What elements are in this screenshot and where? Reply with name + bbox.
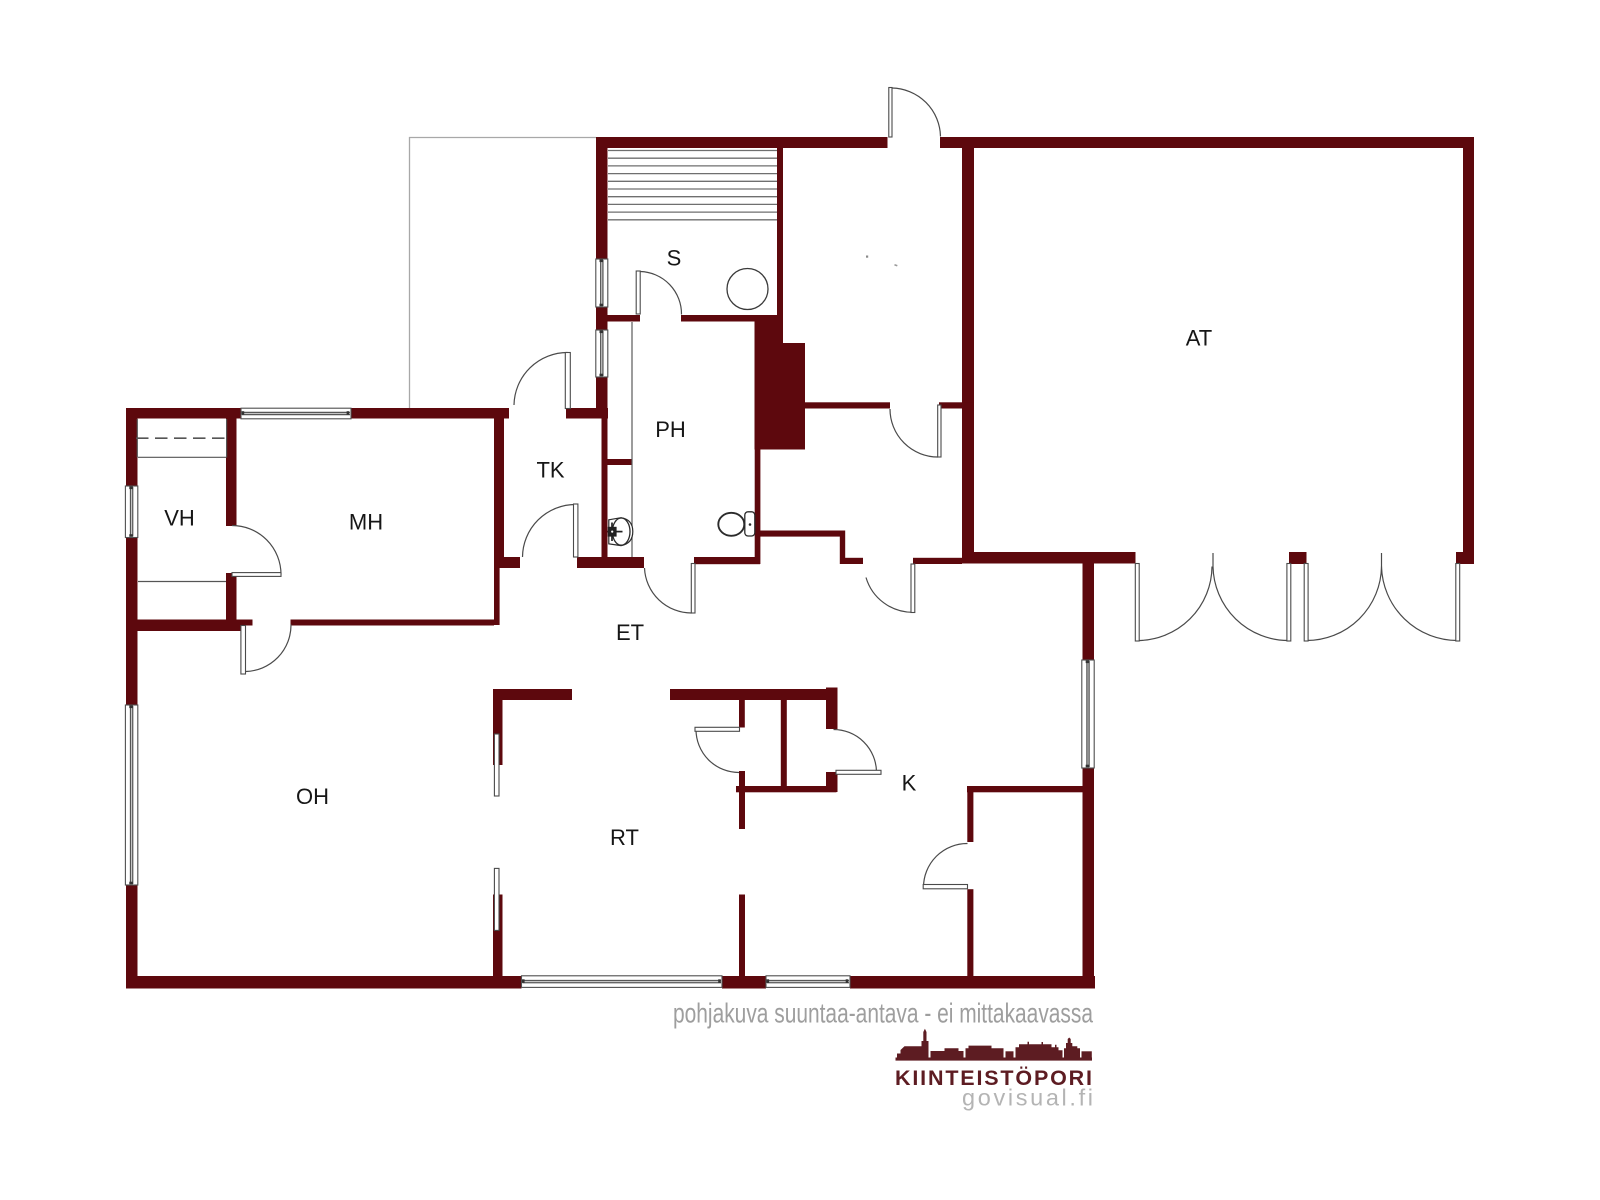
svg-text:VH: VH (164, 506, 195, 531)
svg-text:PH: PH (655, 417, 686, 442)
svg-text:RT: RT (610, 825, 639, 850)
svg-text:MH: MH (349, 510, 383, 535)
svg-text:ET: ET (616, 620, 644, 645)
svg-text:OH: OH (296, 784, 329, 809)
svg-text:K: K (902, 771, 917, 796)
svg-text:S: S (667, 246, 682, 271)
svg-text:AT: AT (1186, 326, 1212, 351)
svg-text:TK: TK (536, 458, 564, 483)
svg-text:pohjakuva suuntaa-antava - ei: pohjakuva suuntaa-antava - ei mittakaava… (673, 998, 1094, 1029)
